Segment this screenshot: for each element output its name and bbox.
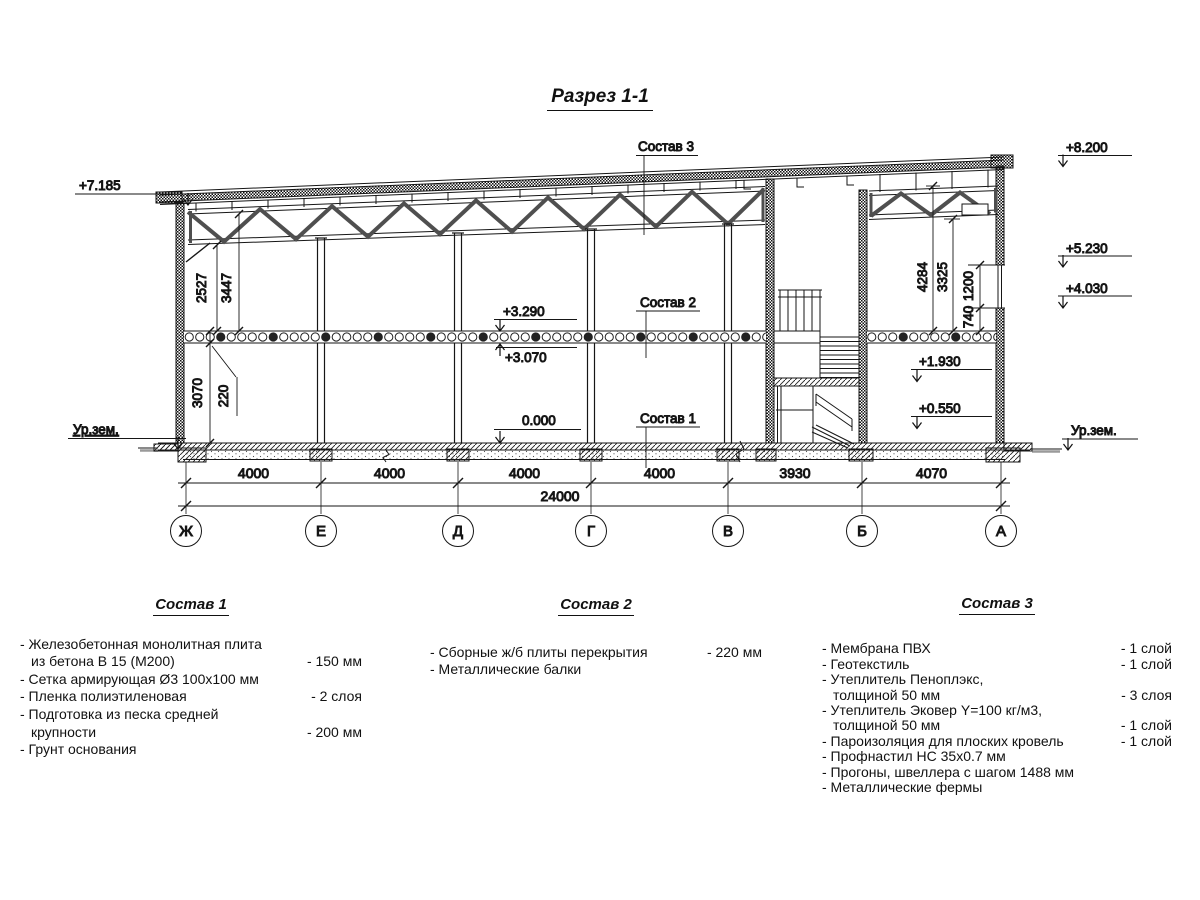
dimensions-left: 2527 3447 220 3070 xyxy=(190,210,243,447)
axis-bubble-v: В xyxy=(713,516,744,547)
dim-740: 740 xyxy=(961,306,976,329)
legend-item: - Грунт основания xyxy=(20,741,362,759)
window xyxy=(995,265,1005,308)
item-value: - 1 слой xyxy=(1113,641,1172,656)
legend-item: - Пленка полиэтиленовая - 2 слоя xyxy=(20,688,362,706)
legend-sostav-3: Состав 3 - Мембрана ПВХ - 1 слой - Геоте… xyxy=(822,596,1172,795)
item-value: - 3 слоя xyxy=(1113,688,1172,703)
dim-1200: 1200 xyxy=(961,271,976,301)
legend-sostav-1: Состав 1 - Железобетонная монолитная пли… xyxy=(20,596,362,759)
legend-item: - Подготовка из песка среднейкрупности -… xyxy=(20,706,362,741)
axis-label: Е xyxy=(316,523,326,540)
item-text: - Грунт основания xyxy=(20,741,137,759)
item-value: - 1 слой xyxy=(1113,657,1172,672)
drawing-sheet: Разрез 1-1 xyxy=(0,0,1200,900)
axis-bubble-zh: Ж xyxy=(171,516,202,547)
axis-label: Г xyxy=(587,523,595,540)
label-sostav1: Состав 1 xyxy=(640,411,696,426)
axis-label: В xyxy=(723,523,733,540)
mark-ground-right: Ур.зем. xyxy=(1071,423,1117,438)
mark-0550: +0.550 xyxy=(919,401,961,416)
axis-bubble-d: Д xyxy=(443,516,474,547)
item-text: - Металлические фермы xyxy=(822,780,982,795)
staircase xyxy=(774,290,859,448)
dim-span-1: 4000 xyxy=(238,465,269,481)
item-value: - 150 мм xyxy=(299,653,362,671)
legend-item: - Железобетонная монолитная плитаиз бето… xyxy=(20,636,362,671)
item-text: - Утеплитель Эковер Y=100 кг/м3, xyxy=(822,703,1042,718)
mark-4030: +4.030 xyxy=(1066,281,1108,296)
axis-label: А xyxy=(996,523,1006,540)
legend-item: - Металлические фермы xyxy=(822,780,1172,795)
item-text: - Пленка полиэтиленовая xyxy=(20,688,187,706)
legend-item: - Утеплитель Пеноплэкс,толщиной 50 мм - … xyxy=(822,672,1172,703)
legend-item: - Мембрана ПВХ - 1 слой xyxy=(822,641,1172,656)
wall-stair-left xyxy=(766,179,774,443)
axis-bubble-b: Б xyxy=(847,516,878,547)
legend-item: - Геотекстиль - 1 слой xyxy=(822,657,1172,672)
drawing-title: Разрез 1-1 xyxy=(500,86,700,108)
roof xyxy=(156,155,1013,212)
mark-3290: +3.290 xyxy=(503,304,545,319)
mark-7185: +7.185 xyxy=(79,178,121,193)
dim-span-3: 4000 xyxy=(509,465,540,481)
item-value: - 1 слой xyxy=(1113,734,1172,749)
dim-4284: 4284 xyxy=(915,261,930,292)
label-sostav2: Состав 2 xyxy=(640,295,696,310)
item-value: - 2 слоя xyxy=(303,688,362,706)
item-text: - Металлические балки xyxy=(430,661,581,679)
axis-bubble-a: А xyxy=(986,516,1017,547)
item-value: - 200 мм xyxy=(299,724,362,742)
legend-item: - Металлические балки xyxy=(430,661,762,679)
sostav-leaders: Состав 3 Состав 2 Состав 1 xyxy=(636,139,700,468)
axis-label: Ж xyxy=(179,523,193,540)
dim-span-5: 3930 xyxy=(779,465,810,481)
item-text: - Прогоны, швеллера с шагом 1488 мм xyxy=(822,765,1074,780)
mark-5230: +5.230 xyxy=(1066,241,1108,256)
dim-220: 220 xyxy=(216,385,231,408)
wall-axis-a-top xyxy=(996,166,1004,265)
mark-8200: +8.200 xyxy=(1066,140,1108,155)
item-text: - Сетка армирующая Ø3 100x100 мм xyxy=(20,671,259,689)
floor-slab-level2 xyxy=(184,331,996,343)
axis-label: Б xyxy=(857,523,867,540)
item-text: - Пароизоляция для плоских кровель xyxy=(822,734,1064,749)
truss-main xyxy=(186,187,765,263)
mark-3070: +3.070 xyxy=(505,350,547,365)
item-text: - Мембрана ПВХ xyxy=(822,641,931,656)
wall-axis-zh xyxy=(176,202,184,443)
mark-0000: 0.000 xyxy=(522,413,556,428)
item-text: - Профнастил НС 35х0.7 мм xyxy=(822,749,1006,764)
dim-3447: 3447 xyxy=(219,273,234,303)
dim-span-2: 4000 xyxy=(374,465,405,481)
item-text: - Утеплитель Пеноплэкс, xyxy=(822,672,983,687)
item-text-2: толщиной 50 мм xyxy=(822,718,1042,733)
mark-ground-left: Ур.зем. xyxy=(73,422,119,437)
wall-axis-a-bottom xyxy=(996,308,1004,443)
axis-label: Д xyxy=(453,523,463,540)
dim-total: 24000 xyxy=(541,488,580,504)
dim-3325: 3325 xyxy=(935,262,950,292)
truss-right xyxy=(869,186,998,220)
dim-2527: 2527 xyxy=(194,273,209,303)
item-text: - Железобетонная монолитная плита xyxy=(20,636,262,654)
legend-item: - Сетка армирующая Ø3 100x100 мм xyxy=(20,671,362,689)
lower-flight xyxy=(812,394,854,448)
item-value: - 1 слой xyxy=(1113,718,1172,733)
legend-item: - Сборные ж/б плиты перекрытия - 220 мм xyxy=(430,644,762,662)
dim-span-6: 4070 xyxy=(916,465,947,481)
axis-bubble-e: Е xyxy=(306,516,337,547)
item-text: - Подготовка из песка средней xyxy=(20,706,219,724)
legend-1-title: Состав 1 xyxy=(20,596,362,614)
dimensions-bottom: 4000 4000 4000 4000 3930 4070 24000 xyxy=(178,462,1010,514)
item-text-2: толщиной 50 мм xyxy=(822,688,983,703)
axis-bubbles: Ж Е Д Г В Б А xyxy=(171,516,1017,547)
legend-item: - Утеплитель Эковер Y=100 кг/м3,толщиной… xyxy=(822,703,1172,734)
upper-flight-steps xyxy=(820,337,859,378)
legend-sostav-2: Состав 2 - Сборные ж/б плиты перекрытия … xyxy=(430,596,762,679)
label-sostav3: Состав 3 xyxy=(638,139,694,154)
legend-item: - Прогоны, швеллера с шагом 1488 мм xyxy=(822,765,1172,780)
item-text-2: из бетона В 15 (М200) xyxy=(20,653,262,671)
dim-span-4: 4000 xyxy=(644,465,675,481)
legend-2-title: Состав 2 xyxy=(430,596,762,614)
legend-3-title: Состав 3 xyxy=(822,596,1172,611)
axis-bubble-g: Г xyxy=(576,516,607,547)
wall-axis-b xyxy=(859,190,867,443)
item-text-2: крупности xyxy=(20,724,219,742)
item-text: - Сборные ж/б плиты перекрытия xyxy=(430,644,648,662)
dim-3070: 3070 xyxy=(190,378,205,408)
legend-item: - Профнастил НС 35х0.7 мм xyxy=(822,749,1172,764)
mark-1930: +1.930 xyxy=(919,354,961,369)
mid-landing xyxy=(774,378,859,386)
legend-item: - Пароизоляция для плоских кровель - 1 с… xyxy=(822,734,1172,749)
item-text: - Геотекстиль xyxy=(822,657,909,672)
item-value: - 220 мм xyxy=(699,644,762,662)
